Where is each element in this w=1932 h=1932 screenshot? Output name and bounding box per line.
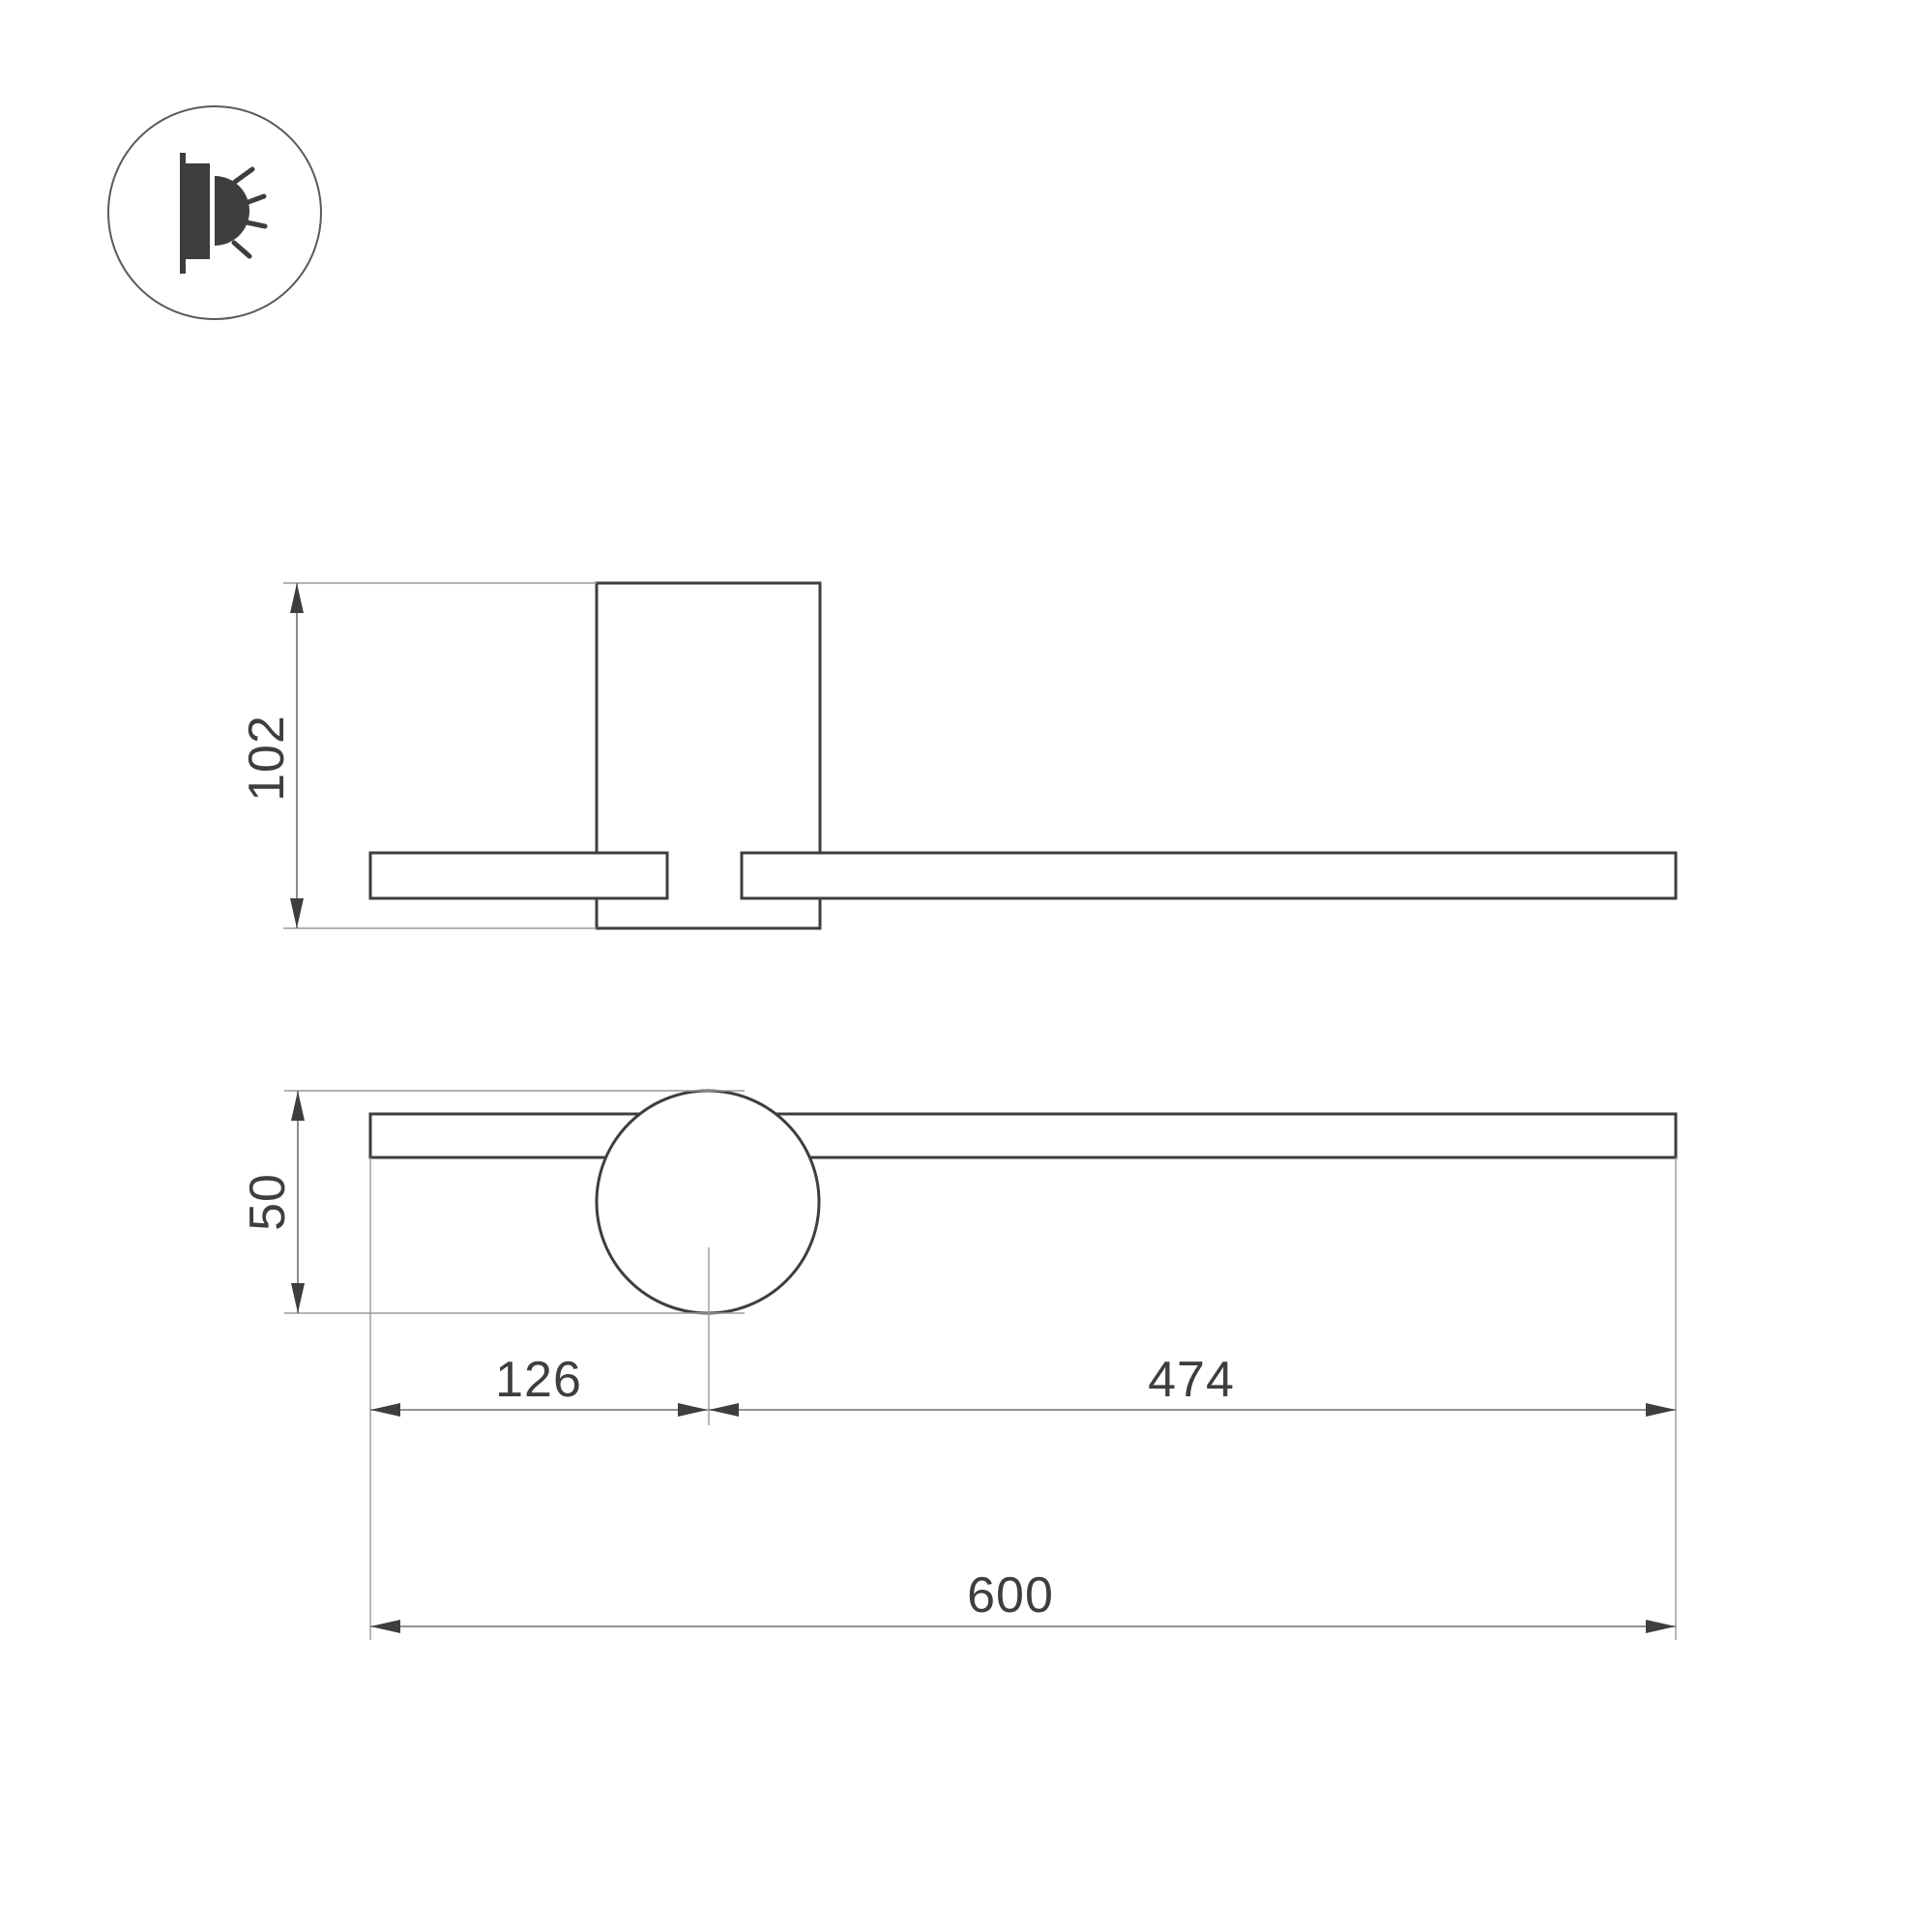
arrowhead-right — [1646, 1403, 1676, 1417]
icon-lamp-body — [184, 163, 210, 259]
arrowhead-down — [291, 1283, 305, 1313]
front-view-lamp-head — [597, 1091, 819, 1313]
dimension-label-600: 600 — [967, 1567, 1054, 1624]
arrowhead-right — [678, 1403, 708, 1417]
side-view-left-arm — [370, 853, 667, 898]
dimension-drawing-svg: 102 50 12 — [0, 0, 1932, 1932]
side-view-right-arm — [742, 853, 1676, 898]
dimension-label-102: 102 — [239, 715, 295, 802]
dimension-label-50: 50 — [240, 1173, 296, 1231]
arrowhead-up — [291, 1091, 305, 1121]
arrowhead-right — [1646, 1620, 1676, 1633]
arrowhead-left — [709, 1403, 739, 1417]
drawing-canvas: 102 50 12 — [0, 0, 1932, 1932]
dimension-474: 474 — [709, 1352, 1676, 1417]
dimension-label-126: 126 — [495, 1352, 582, 1408]
side-view: 102 — [239, 583, 1676, 928]
arrowhead-left — [370, 1620, 400, 1633]
arrowhead-left — [370, 1403, 400, 1417]
dimension-label-474: 474 — [1148, 1352, 1235, 1408]
arrowhead-up — [290, 583, 304, 613]
dimension-600: 600 — [370, 1567, 1676, 1633]
dimension-126: 126 — [370, 1352, 708, 1417]
arrowhead-down — [290, 898, 304, 928]
wall-light-icon — [108, 106, 321, 319]
front-view: 50 126 474 — [240, 1091, 1676, 1640]
front-view-arm — [370, 1114, 1676, 1157]
